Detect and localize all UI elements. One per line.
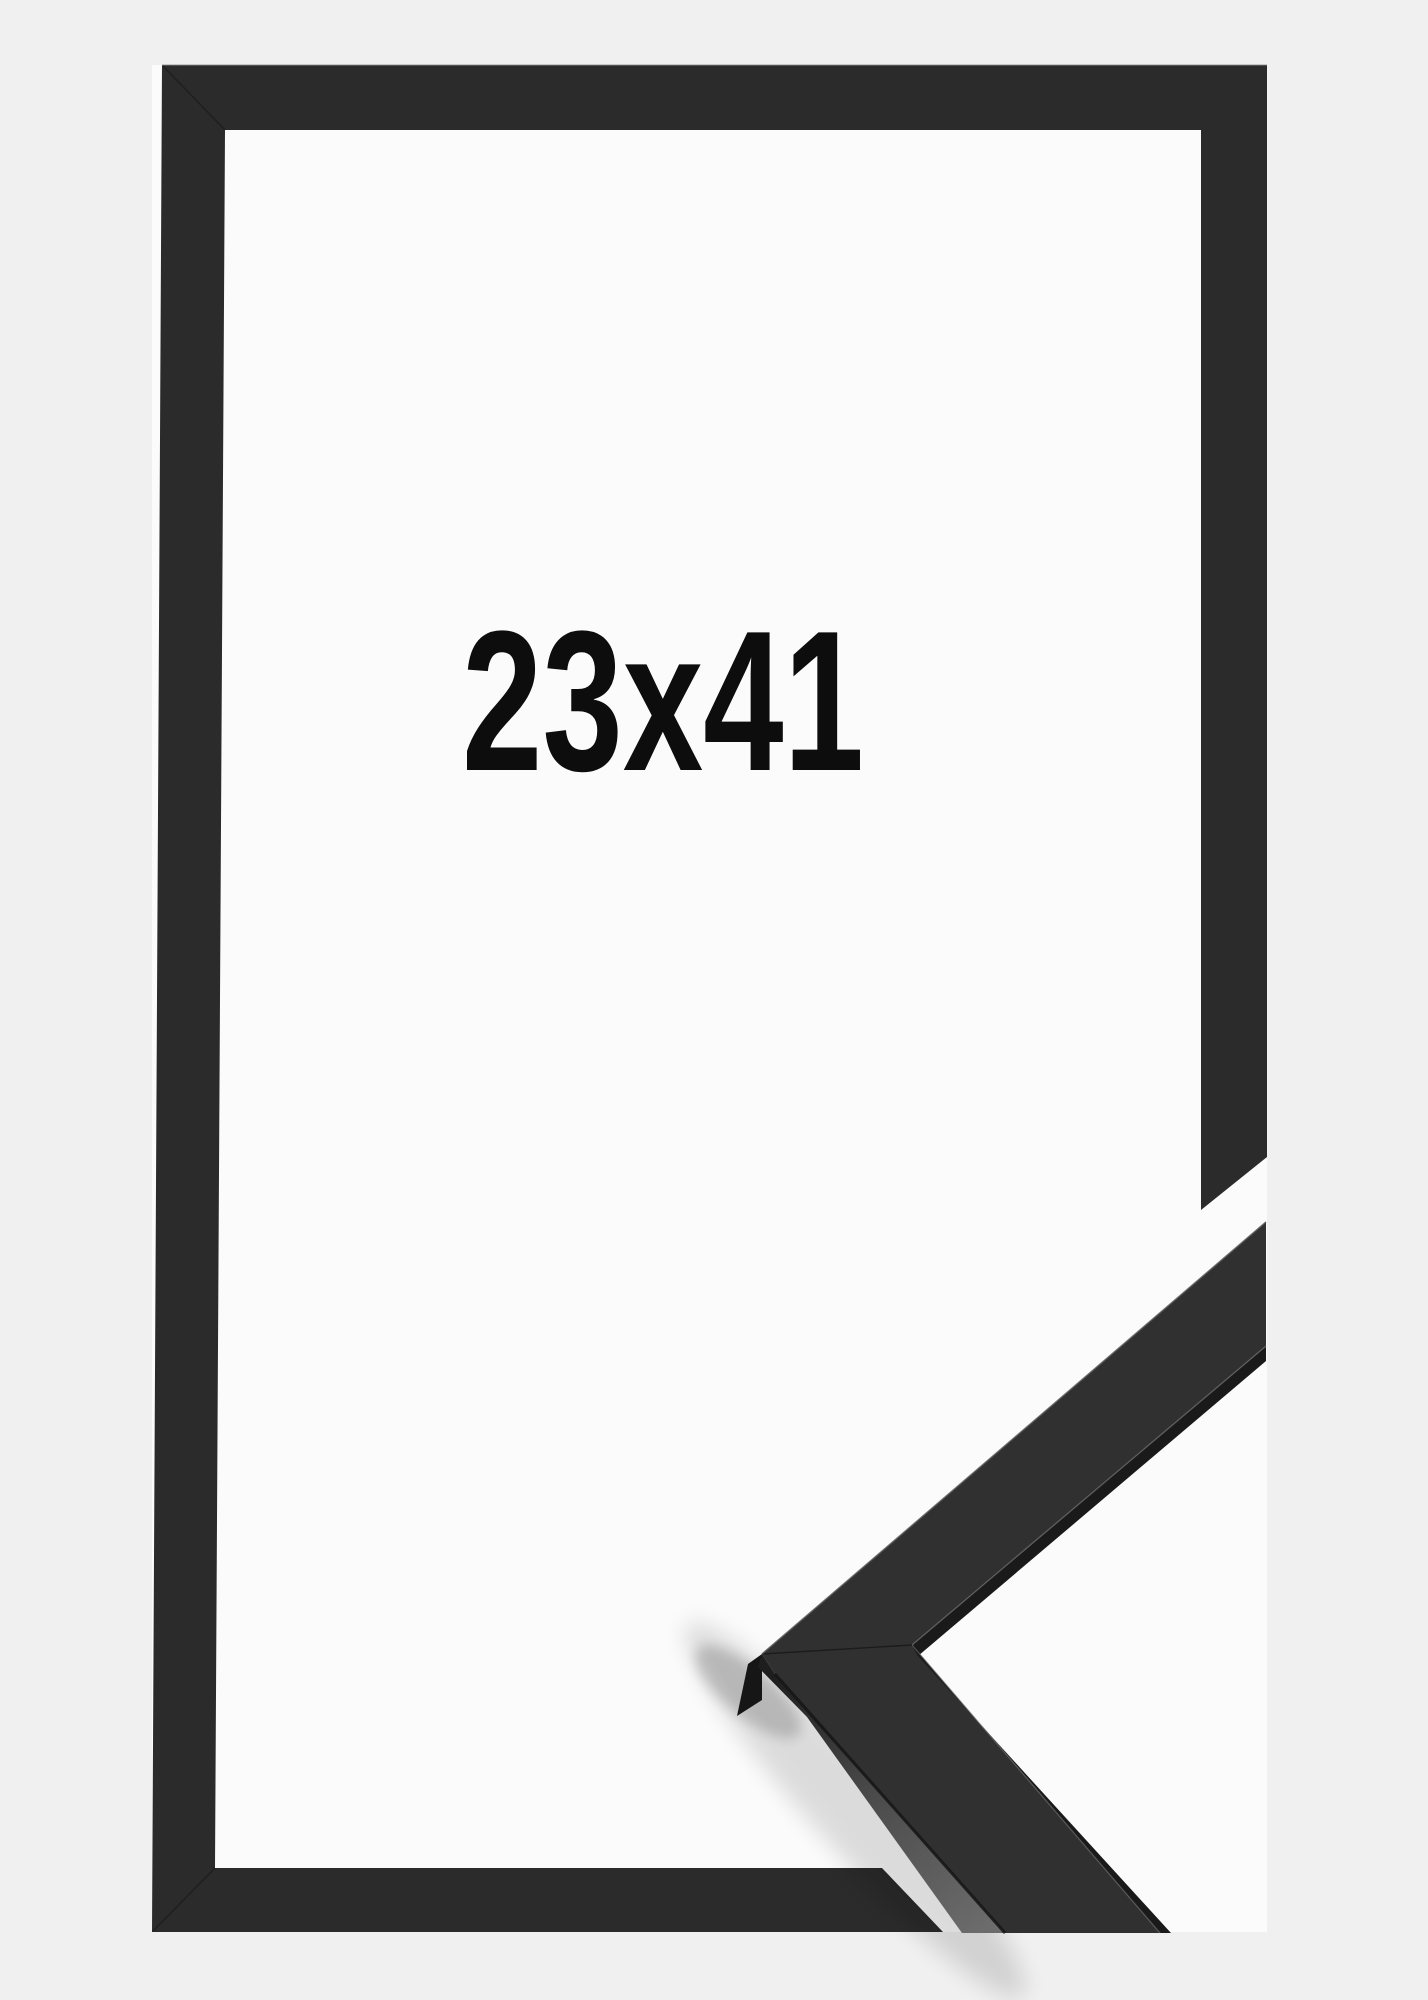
size-label: 23x41: [462, 590, 864, 813]
product-image: 23x41: [0, 0, 1428, 2000]
